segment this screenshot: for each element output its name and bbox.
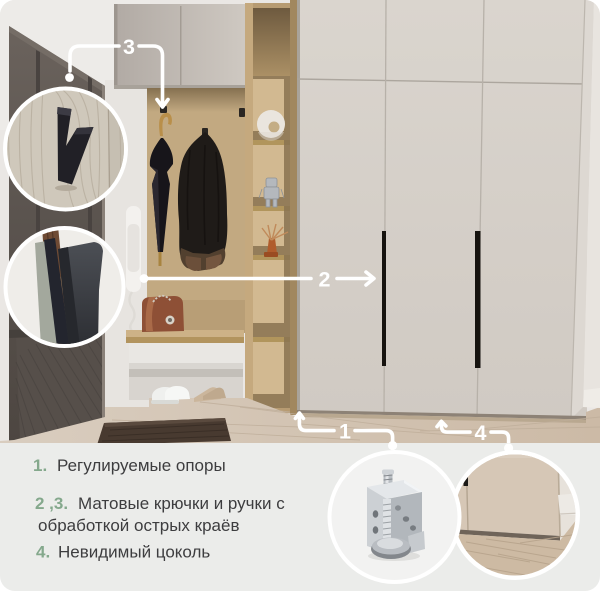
svg-text:4: 4 — [475, 421, 487, 445]
svg-text:3: 3 — [123, 35, 135, 59]
svg-text:2: 2 — [319, 268, 331, 292]
svg-text:4.: 4. — [36, 543, 50, 562]
svg-text:1.: 1. — [33, 456, 47, 475]
svg-text:Регулируемые опоры: Регулируемые опоры — [57, 456, 226, 475]
svg-text:Матовые крючки и ручки с: Матовые крючки и ручки с — [78, 494, 285, 513]
svg-text:обработкой острых краёв: обработкой острых краёв — [38, 516, 239, 535]
svg-text:1: 1 — [339, 420, 351, 444]
svg-text:2 ,3.: 2 ,3. — [35, 494, 68, 513]
svg-text:Невидимый цоколь: Невидимый цоколь — [58, 543, 210, 562]
